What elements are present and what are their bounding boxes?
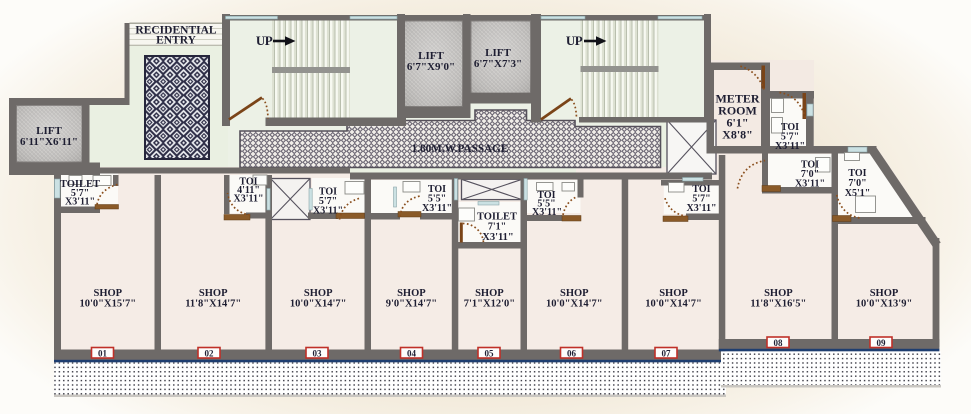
svg-text:11'8"X16'5": 11'8"X16'5" [750, 299, 806, 310]
svg-text:SHOP: SHOP [764, 288, 793, 299]
svg-text:X3'11": X3'11" [795, 179, 825, 190]
svg-text:10'0"X13'9": 10'0"X13'9" [856, 299, 913, 310]
svg-text:SHOP: SHOP [560, 288, 589, 299]
svg-text:09: 09 [877, 338, 887, 348]
svg-text:SHOP: SHOP [199, 288, 228, 299]
svg-text:SHOP: SHOP [870, 288, 899, 299]
svg-text:X3'11": X3'11" [775, 141, 805, 152]
svg-text:SHOP: SHOP [94, 288, 123, 299]
svg-text:SHOP: SHOP [475, 288, 504, 299]
svg-text:X3'11": X3'11" [65, 197, 95, 208]
svg-text:X3'11": X3'11" [313, 206, 343, 217]
svg-text:ENTRY: ENTRY [156, 35, 197, 47]
svg-text:X3'11": X3'11" [687, 203, 717, 214]
svg-text:05: 05 [485, 348, 495, 358]
svg-text:SHOP: SHOP [304, 288, 333, 299]
svg-text:10'0"X14'7": 10'0"X14'7" [546, 299, 603, 310]
svg-text:7'1": 7'1" [488, 222, 506, 233]
svg-text:1.80M.W.PASSAGE: 1.80M.W.PASSAGE [412, 143, 509, 155]
svg-text:X3'11": X3'11" [532, 207, 562, 218]
svg-text:03: 03 [313, 348, 323, 358]
svg-text:SHOP: SHOP [659, 288, 688, 299]
svg-text:10'0"X15'7": 10'0"X15'7" [80, 299, 137, 310]
svg-text:X8'8": X8'8" [722, 128, 753, 142]
svg-text:X5'1": X5'1" [845, 188, 871, 199]
svg-text:UP: UP [256, 33, 273, 48]
svg-text:11'8"X14'7": 11'8"X14'7" [185, 299, 241, 310]
svg-text:08: 08 [774, 338, 784, 348]
svg-text:02: 02 [205, 348, 215, 358]
svg-text:X3'11": X3'11" [234, 194, 264, 205]
svg-text:UP: UP [566, 33, 583, 48]
svg-text:6'11"X6'11": 6'11"X6'11" [20, 136, 78, 148]
svg-text:01: 01 [98, 348, 108, 358]
svg-text:X3'11": X3'11" [482, 232, 514, 243]
svg-text:9'0"X14'7": 9'0"X14'7" [386, 299, 437, 310]
svg-text:7'1"X12'0": 7'1"X12'0" [464, 299, 515, 310]
svg-text:04: 04 [407, 348, 417, 358]
svg-text:SHOP: SHOP [397, 288, 426, 299]
svg-text:07: 07 [662, 348, 672, 358]
svg-text:X3'11": X3'11" [422, 203, 452, 214]
svg-text:10'0"X14'7": 10'0"X14'7" [645, 299, 702, 310]
svg-text:06: 06 [567, 348, 577, 358]
svg-text:10'0"X14'7": 10'0"X14'7" [290, 299, 347, 310]
svg-text:6'7"X7'3": 6'7"X7'3" [474, 58, 522, 70]
svg-text:6'7"X9'0": 6'7"X9'0" [407, 61, 455, 73]
